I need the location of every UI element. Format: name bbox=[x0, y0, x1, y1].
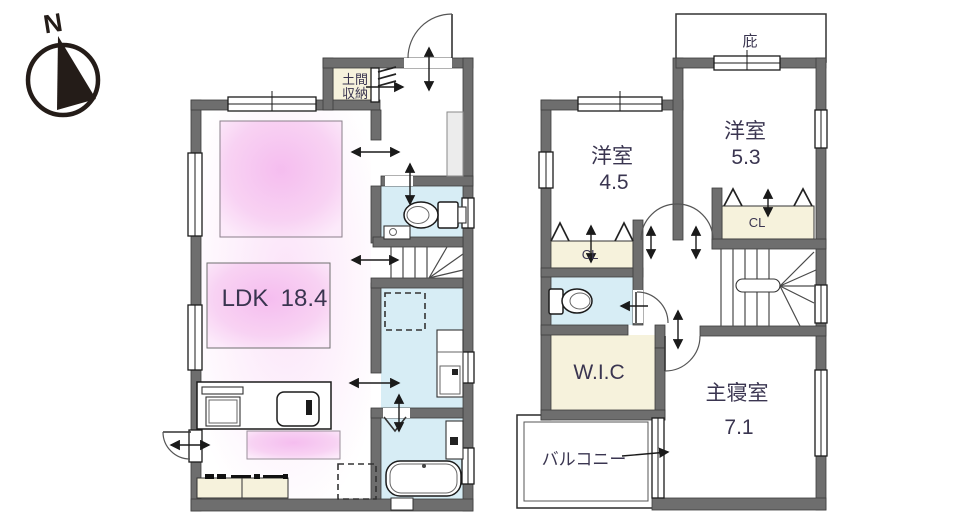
pink-rug-large bbox=[220, 121, 342, 237]
room-label-wic: W.I.C bbox=[573, 361, 624, 384]
floorplan-drawing: N bbox=[0, 0, 957, 518]
room-label-doma-1: 土間 bbox=[342, 72, 368, 87]
room-area-yoshitsu-b: 5.3 bbox=[731, 146, 760, 169]
compass-north-label: N bbox=[41, 7, 64, 40]
floorplan-image: N bbox=[0, 0, 957, 518]
closet-label-b: CL bbox=[749, 215, 766, 230]
pink-counter-strip bbox=[247, 431, 340, 459]
entrance-door bbox=[408, 14, 452, 58]
stairs-1f bbox=[391, 247, 463, 278]
label-eaves: 庇 bbox=[742, 33, 757, 50]
vanity-icon bbox=[437, 330, 463, 397]
kitchen-island bbox=[197, 382, 331, 429]
floor-plan-2f: 洋室 4.5 洋室 5.3 CL CL W.I.C 主寝室 7.1 バルコニー … bbox=[517, 14, 827, 510]
room-label-master: 主寝室 bbox=[706, 382, 769, 405]
floor-plan-1f: LDK 18.4 土間 収納 bbox=[163, 14, 474, 511]
room-label-doma-2: 収納 bbox=[342, 86, 368, 101]
toilet-icon-2f bbox=[549, 289, 592, 314]
ldk-door-frame bbox=[189, 430, 202, 462]
doma-shelf-marks bbox=[378, 67, 396, 86]
compass: N bbox=[28, 7, 98, 115]
room-area-ldk: 18.4 bbox=[281, 285, 328, 312]
kitchen-counter bbox=[197, 474, 288, 498]
room-area-master: 7.1 bbox=[724, 416, 753, 439]
faucet-icon bbox=[306, 400, 312, 415]
shoe-cabinet bbox=[447, 112, 463, 176]
room-area-yoshitsu-a: 4.5 bbox=[599, 171, 628, 194]
kitchen-sink-icon bbox=[277, 392, 319, 426]
bathtub-icon bbox=[386, 461, 461, 496]
room-label-yoshitsu-b: 洋室 bbox=[724, 120, 766, 143]
doma-sliding-door bbox=[371, 68, 379, 102]
bath-counter-icon bbox=[446, 421, 463, 459]
stairs-2f bbox=[721, 249, 816, 326]
stairs-handrail bbox=[736, 279, 780, 292]
room-label-ldk: LDK bbox=[222, 285, 269, 312]
room-label-yoshitsu-a: 洋室 bbox=[591, 145, 633, 168]
room-label-balcony: バルコニー bbox=[542, 450, 627, 469]
bath-sill bbox=[391, 498, 413, 510]
hand-sink-icon bbox=[384, 226, 410, 239]
bedroom-door-arc bbox=[665, 336, 700, 371]
closet-label-a: CL bbox=[582, 247, 599, 262]
